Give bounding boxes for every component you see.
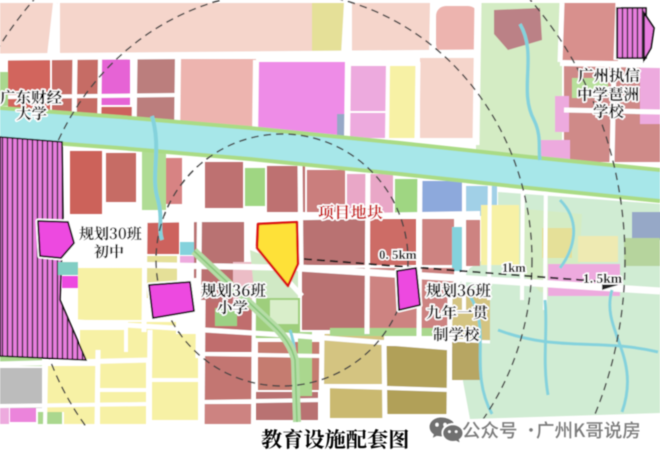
- svg-text:1km: 1km: [502, 261, 526, 275]
- svg-text:1. 5km: 1. 5km: [583, 271, 623, 286]
- svg-text:0. 5km: 0. 5km: [379, 247, 417, 262]
